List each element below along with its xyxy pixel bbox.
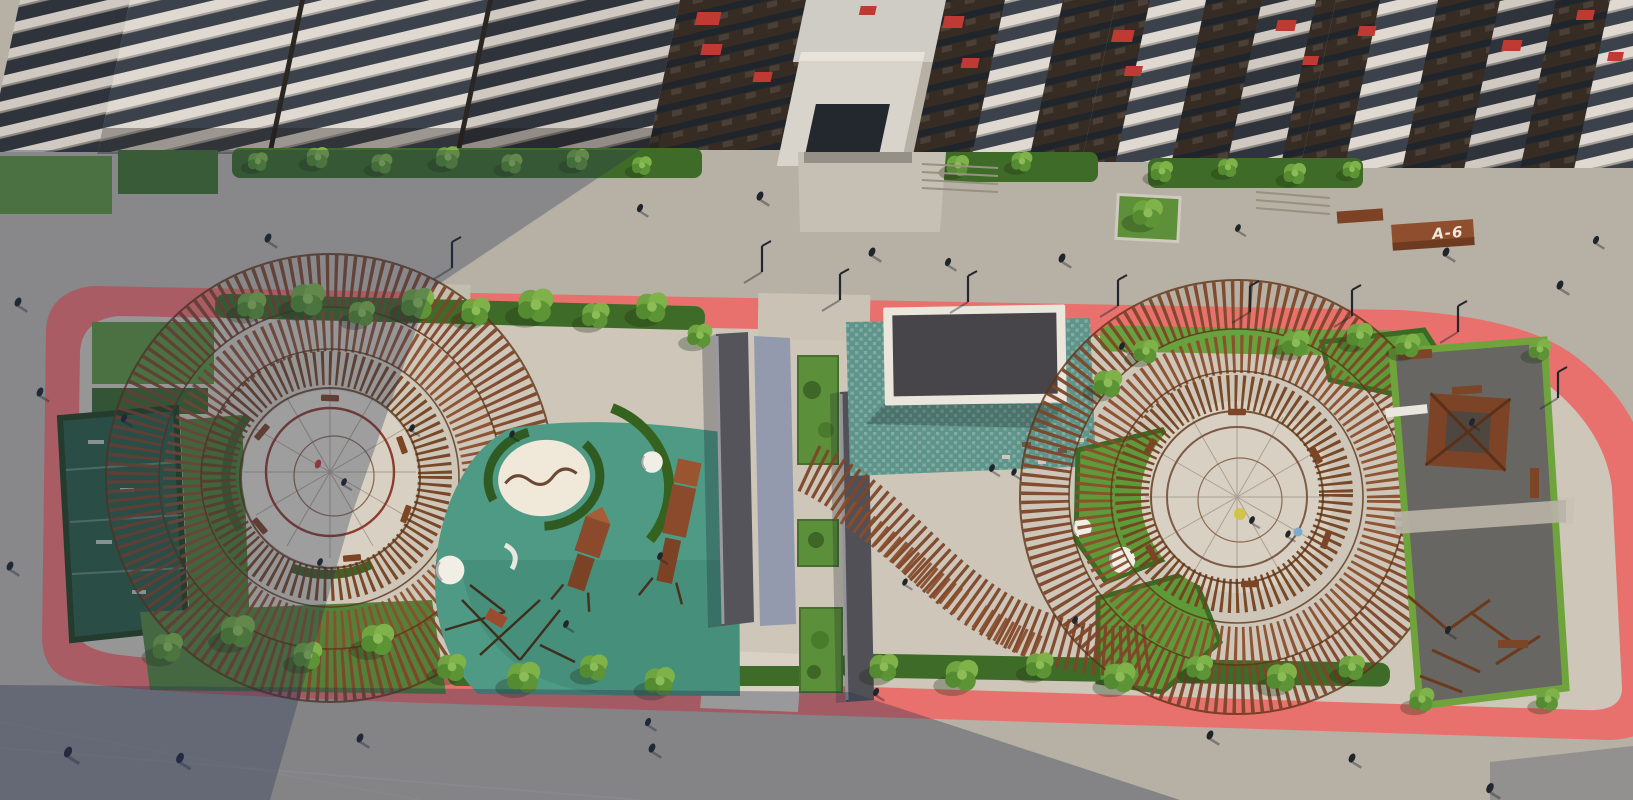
a6-label: A-6 [1431, 223, 1464, 243]
blue-path [754, 336, 796, 626]
building-left-c [458, 0, 680, 150]
arch-canopy [799, 52, 925, 61]
bench [1498, 640, 1528, 648]
yellow-seat [1234, 508, 1246, 520]
arch-shadow [804, 152, 912, 163]
building-facades [0, 0, 1633, 168]
aerial-render: A-6 [0, 0, 1633, 800]
bench [1530, 468, 1539, 498]
pavilion [883, 304, 1067, 405]
hedge-row [1148, 158, 1363, 188]
blue-toy [1294, 528, 1303, 537]
pavilion-roof [892, 313, 1057, 397]
teal-playground [435, 408, 740, 696]
scene-canvas: A-6 [0, 0, 1633, 800]
